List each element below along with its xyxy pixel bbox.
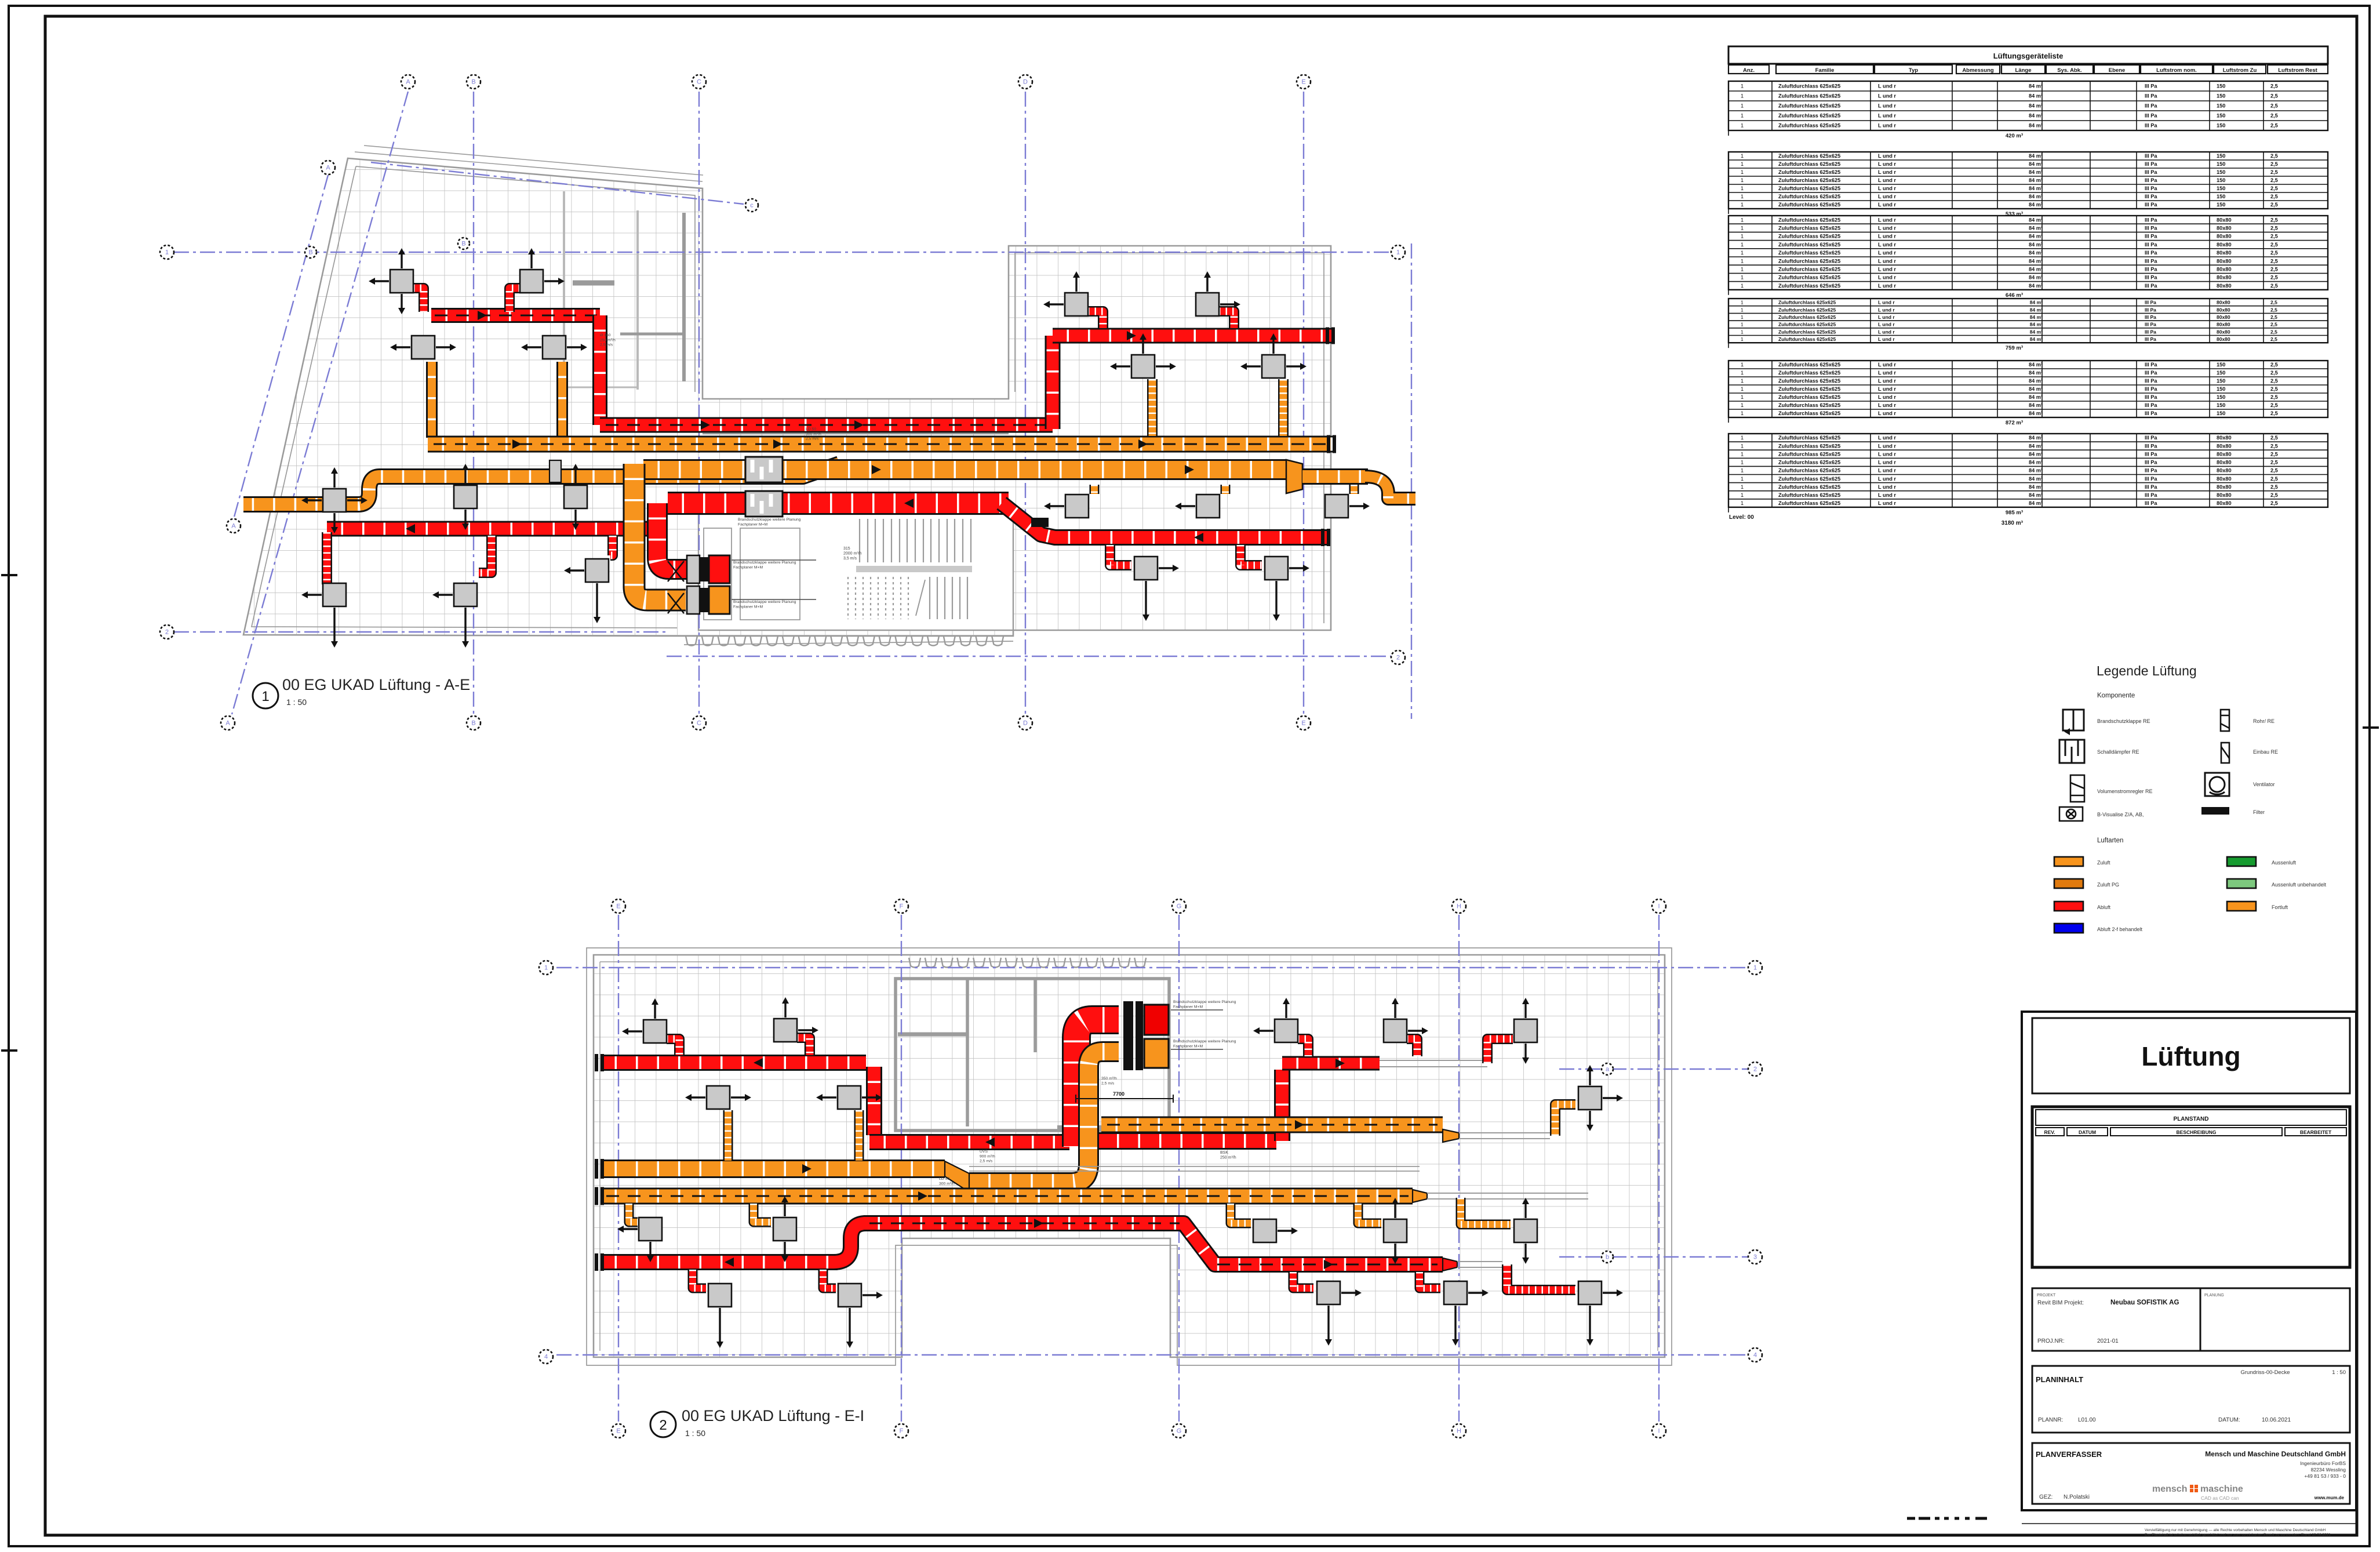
svg-text:PLANSTAND: PLANSTAND [2174,1116,2209,1122]
svg-text:Komponente: Komponente [2097,692,2135,699]
svg-text:GEZ:: GEZ: [2039,1494,2053,1500]
svg-text:G: G [1177,903,1182,910]
svg-text:N.Polatski: N.Polatski [2064,1494,2090,1500]
svg-text:a: a [1606,1066,1610,1073]
svg-text:1: 1 [165,249,169,256]
svg-text:+49 81 53 / 933 - 0: +49 81 53 / 933 - 0 [2304,1473,2346,1479]
svg-text:1: 1 [544,965,548,972]
svg-text:A: A [225,720,230,727]
svg-text:C: C [697,79,701,86]
svg-text:Filter: Filter [2253,809,2265,815]
svg-text:Der Planinhalt ist urheberrech: Der Planinhalt ist urheberrechtlich gesc… [2145,1533,2331,1537]
svg-text:Länge: Länge [2015,67,2032,74]
svg-text:1: 1 [1753,965,1757,972]
svg-text:646 m³: 646 m³ [2006,292,2023,299]
svg-text:B: B [308,249,312,256]
svg-text:Sys. Abk.: Sys. Abk. [2057,67,2081,74]
svg-text:Aussenluft unbehandelt: Aussenluft unbehandelt [2272,882,2327,888]
svg-text:BEARBEITET: BEARBEITET [2300,1129,2332,1135]
svg-text:F: F [900,903,904,910]
svg-text:533 m³: 533 m³ [2006,211,2023,217]
svg-text:c: c [750,202,754,209]
svg-text:Schalldämpfer RE: Schalldämpfer RE [2097,749,2139,755]
svg-text:E: E [616,903,620,910]
svg-text:PLANUNG: PLANUNG [2204,1293,2224,1297]
svg-text:E: E [1301,79,1305,86]
svg-text:2: 2 [1753,1066,1757,1073]
svg-text:D: D [1023,720,1028,727]
svg-text:DATUM:: DATUM: [2218,1417,2240,1423]
svg-text:1: 1 [1396,249,1400,256]
svg-text:Luftstrom nom.: Luftstrom nom. [2156,67,2197,74]
svg-text:PROJEKT: PROJEKT [2037,1293,2056,1297]
svg-text:H: H [1457,1428,1461,1435]
svg-text:2: 2 [659,1417,667,1433]
svg-text:2: 2 [1396,655,1400,661]
svg-text:maschine: maschine [2200,1484,2243,1494]
svg-text:A: A [406,79,410,86]
svg-text:Abmessung: Abmessung [1962,67,1994,74]
svg-text:B: B [461,241,465,248]
svg-text:00 EG UKAD Lüftung - A-E: 00 EG UKAD Lüftung - A-E [282,676,470,693]
svg-text:Zuluft PG: Zuluft PG [2097,882,2119,888]
svg-text:Familie: Familie [1815,67,1835,74]
svg-text:2: 2 [165,629,169,636]
svg-text:D: D [1023,79,1028,86]
svg-text:PLANINHALT: PLANINHALT [2036,1375,2083,1384]
svg-text:7700: 7700 [1113,1091,1125,1097]
svg-text:Vervielfältigung nur mit Geneh: Vervielfältigung nur mit Genehmigung — a… [2145,1528,2326,1532]
svg-text:Grundriss-00-Decke: Grundriss-00-Decke [2241,1369,2290,1376]
svg-text:759 m³: 759 m³ [2006,345,2023,351]
svg-text:Lüftung: Lüftung [2141,1041,2240,1071]
svg-text:CAD as CAD can: CAD as CAD can [2201,1495,2239,1501]
svg-text:1: 1 [261,689,269,704]
svg-text:420 m³: 420 m³ [2006,133,2023,139]
svg-text:mensch: mensch [2152,1484,2187,1494]
svg-text:985 m³: 985 m³ [2006,510,2023,516]
svg-text:BESCHREIBUNG: BESCHREIBUNG [2177,1129,2217,1135]
svg-text:82234 Wessling: 82234 Wessling [2311,1467,2346,1473]
svg-text:10.06.2021: 10.06.2021 [2262,1417,2291,1423]
svg-text:00 EG UKAD Lüftung - E-I: 00 EG UKAD Lüftung - E-I [682,1407,864,1424]
svg-text:Legende Lüftung: Legende Lüftung [2097,663,2197,678]
svg-text:L01.00: L01.00 [2078,1417,2096,1423]
svg-text:Fortluft: Fortluft [2272,904,2288,910]
svg-text:DATUM: DATUM [2079,1129,2096,1135]
svg-text:A: A [231,523,236,530]
svg-text:I: I [1658,1428,1660,1435]
svg-text:Einbau RE: Einbau RE [2253,749,2278,755]
svg-text:Luftstrom Zu: Luftstrom Zu [2223,67,2257,74]
svg-text:Ingenieurbüro ForBS: Ingenieurbüro ForBS [2300,1460,2346,1466]
svg-text:E: E [616,1428,620,1435]
svg-text:Ebene: Ebene [2109,67,2126,74]
svg-text:Revit BIM Projekt:: Revit BIM Projekt: [2037,1300,2084,1306]
svg-text:Aussenluft: Aussenluft [2272,860,2297,866]
svg-text:1 : 50: 1 : 50 [286,697,307,707]
svg-text:I: I [1658,903,1660,910]
svg-text:B-Visualise Z/A, AB,: B-Visualise Z/A, AB, [2097,812,2144,817]
svg-text:1 : 50: 1 : 50 [685,1429,705,1438]
svg-text:H: H [1457,903,1461,910]
svg-text:Rohr/ RE: Rohr/ RE [2253,718,2275,724]
svg-text:Lüftungsgeräteliste: Lüftungsgeräteliste [1993,52,2064,60]
svg-text:E: E [1301,720,1305,727]
svg-text:Neubau SOFISTIK AG: Neubau SOFISTIK AG [2110,1299,2179,1306]
svg-text:Mensch und Maschine Deutschlan: Mensch und Maschine Deutschland GmbH [2205,1450,2346,1458]
svg-text:Ventilator: Ventilator [2253,782,2275,787]
svg-text:B: B [471,720,475,727]
svg-text:PLANVERFASSER: PLANVERFASSER [2036,1450,2102,1459]
svg-text:3: 3 [1753,1254,1757,1261]
svg-text:3180 m³: 3180 m³ [2001,520,2024,526]
svg-text:4: 4 [544,1354,548,1361]
svg-text:Anz.: Anz. [1743,67,1755,74]
svg-text:REV.: REV. [2044,1129,2055,1135]
svg-text:4: 4 [1753,1352,1757,1359]
svg-text:Volumenstromregler RE: Volumenstromregler RE [2097,788,2153,794]
svg-text:PLANNR:: PLANNR: [2038,1417,2063,1423]
svg-text:Luftarten: Luftarten [2097,837,2123,844]
svg-text:B: B [471,79,475,86]
svg-text:PROJ.NR:: PROJ.NR: [2037,1338,2065,1344]
svg-text:G: G [1177,1428,1182,1435]
svg-text:872 m³: 872 m³ [2006,420,2023,426]
svg-text:Abluft: Abluft [2097,904,2111,910]
svg-text:F: F [900,1428,904,1435]
svg-text:Brandschutzklappe RE: Brandschutzklappe RE [2097,718,2150,724]
svg-text:Abluft 2-f behandelt: Abluft 2-f behandelt [2097,926,2143,932]
svg-text:C: C [697,720,701,727]
svg-text:Zuluft: Zuluft [2097,860,2110,866]
svg-text:Typ: Typ [1909,67,1918,74]
svg-text:Luftstrom Rest: Luftstrom Rest [2278,67,2317,74]
svg-text:www.mum.de: www.mum.de [2314,1495,2345,1500]
svg-text:Level: 00: Level: 00 [1729,514,1754,521]
svg-text:1 : 50: 1 : 50 [2332,1369,2346,1376]
svg-text:b: b [1606,1254,1609,1261]
svg-text:A: A [326,165,330,172]
svg-text:2021-01: 2021-01 [2097,1338,2119,1344]
